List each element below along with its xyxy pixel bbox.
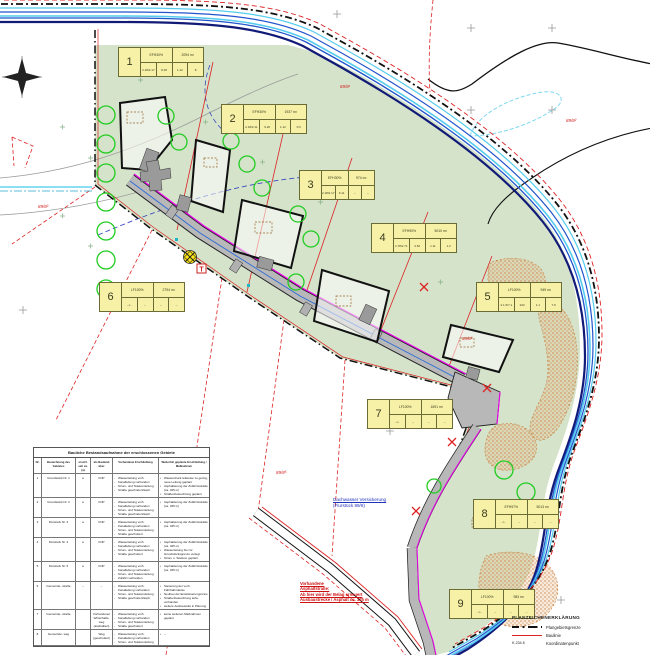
lot-value: –/–	[472, 605, 488, 618]
lot-area: 5013 m²	[528, 500, 559, 514]
row-planned: •Sanierung der vorh. Fahrbahndecke•Neuba…	[159, 582, 209, 609]
lot-value: –	[349, 186, 362, 199]
parcel-number: 89/8⁶	[462, 336, 473, 341]
lot-value: 2.1.5/7.1	[499, 298, 515, 311]
row-existing: -Wasserleitung vorh.-Kanalleitung vorhan…	[113, 630, 159, 645]
hydrant-symbol	[184, 251, 197, 264]
row-existing: -Wasserleitung vorh.-Kanalleitung vorhan…	[113, 518, 159, 537]
lot-value: 1.2	[441, 239, 456, 252]
parcel-number: 89/8⁵	[276, 470, 287, 475]
lot-label-2: 2EFH30%1937 m²2.18/2.119.201.12P.3	[221, 104, 307, 134]
row-status: FNP	[91, 518, 113, 537]
row-existing: -Wasserleitung vorh.-Kanalleitung vorhan…	[113, 474, 159, 497]
parcel-number: 89/8¹	[340, 84, 351, 89]
map-legend: PLANZEICHENERKLÄRUNG PlangebietsgrenzeBa…	[512, 615, 647, 647]
row-existing: -Wasserleitung vorh.-Kanalleitung vorhan…	[113, 538, 159, 561]
lot-label-6: 6LF100%2794 m²–/––––	[99, 282, 185, 312]
lot-number: 1	[119, 48, 141, 76]
row-status: FNP	[91, 498, 113, 517]
table-row: 8Gemeinde- wegWeg (geschottert)-Wasserle…	[34, 630, 209, 646]
row-existing: -Wasserleitung vorh.-Kanalleitung vorhan…	[113, 582, 159, 609]
lot-value: –	[512, 515, 528, 528]
lot-value: 2.78/2.71	[394, 239, 410, 252]
lot-usage: LF100%	[390, 400, 422, 414]
lot-value: 2.18/2.11	[244, 120, 260, 133]
row-age: a	[76, 498, 91, 517]
row-status: FNP	[91, 474, 113, 497]
lot-value: –/–	[390, 415, 406, 428]
table-row: 4Flurstück Nr. 4aFNP-Wasserleitung vorh.…	[34, 538, 209, 562]
row-planned: •Asphaltierung der Zufahrtsstraße (ca. 3…	[159, 538, 209, 561]
row-planned: •Asphaltierung der Zufahrtsstraße (ca. 3…	[159, 518, 209, 537]
row-planned: •keine weiteren Maßnahmen geplant	[159, 610, 209, 629]
row-name: Gemeinde- straße	[42, 582, 76, 609]
lot-usage: EFH90%	[394, 224, 426, 238]
row-no: 7	[34, 610, 42, 629]
lot-value: –	[528, 515, 544, 528]
row-age: –	[76, 582, 91, 609]
lot-area: 983 m²	[504, 590, 535, 604]
table-row: 2Grundstück Nr. 2aFNP-Wasserleitung vorh…	[34, 498, 209, 518]
lot-usage: EFH30%	[322, 171, 349, 185]
parcel-number: 89/8³	[38, 204, 49, 209]
lot-usage: LF100%	[472, 590, 504, 604]
inventory-table: Bauliche Bestandsaufnahme der erschlosse…	[33, 447, 210, 647]
lot-number: 8	[474, 500, 496, 528]
row-no: 3	[34, 518, 42, 537]
lot-area: 1937 m²	[276, 105, 307, 119]
lot-value: 1.12	[276, 120, 292, 133]
lot-value: 7.9	[546, 298, 561, 311]
row-no: 1	[34, 474, 42, 497]
lot-value: 4.52	[410, 239, 426, 252]
header-cell: Nr.	[34, 458, 42, 473]
row-existing: -Wasserleitung vorh.-Kanalleitung vorhan…	[113, 562, 159, 581]
lot-value: –	[362, 186, 374, 199]
lot-area: 2794 m²	[154, 283, 185, 297]
water-line-left	[0, 187, 92, 191]
row-no: 6	[34, 582, 42, 609]
infiltration-line1: Dachwasser Versickerung	[333, 497, 386, 503]
infiltration-annotation: Dachwasser Versickerung (Flurstück 89/8)	[333, 497, 386, 508]
row-age	[76, 610, 91, 629]
lot-value: 2.18/2.17	[322, 186, 336, 199]
lot-value: 9.20	[260, 120, 276, 133]
parcel-number: 89/8²	[566, 118, 577, 123]
lot-value: 1.12	[173, 63, 189, 76]
row-name: Grundstück Nr. 2	[42, 498, 76, 517]
text-sample: K-234 8	[512, 641, 525, 645]
lot-label-1: 1EFH30%2094 m²2.18/2.178.201.128	[118, 47, 204, 77]
row-status: FNP	[91, 562, 113, 581]
lot-number: 6	[100, 283, 122, 311]
lot-value: 232	[515, 298, 531, 311]
lot-value: –	[138, 298, 154, 311]
lot-number: 5	[477, 283, 499, 311]
house-2	[191, 140, 230, 212]
table-row: 7Gemeinde- straßeVorhandener Wirtschafts…	[34, 610, 209, 630]
compass-rose	[2, 56, 42, 98]
table-row: 3Flurstück Nr. 3aFNP-Wasserleitung vorh.…	[34, 518, 209, 538]
lot-number: 3	[300, 171, 322, 199]
lot-value: –	[488, 605, 504, 618]
row-name: Flurstück Nr. 5	[42, 562, 76, 581]
lot-area: 2094 m²	[173, 48, 204, 62]
table-row: 1Grundstück Nr. 1aFNP-Wasserleitung vorh…	[34, 474, 209, 498]
row-name: Gemeinde- weg	[42, 630, 76, 645]
row-no: 4	[34, 538, 42, 561]
row-no: 5	[34, 562, 42, 581]
cyan-dashed-area	[470, 92, 561, 136]
legend-item: Plangebietsgrenze	[512, 623, 647, 631]
lot-value: –	[154, 298, 170, 311]
lot-label-7: 7LF100%1691 m²–/––––	[367, 399, 453, 429]
lot-value: –	[406, 415, 422, 428]
row-planned: •Wasserdruck teilweise zu gering, neue L…	[159, 474, 209, 497]
row-status: –	[91, 582, 113, 609]
row-status: Weg (geschottert)	[91, 630, 113, 645]
lot-usage: EFH30%	[244, 105, 276, 119]
lot-label-4: 4EFH90%5010 m²2.78/2.714.521.111.2	[371, 223, 457, 253]
table-row: 5Flurstück Nr. 5aFNP-Wasserleitung vorh.…	[34, 562, 209, 582]
header-cell: als Bauland über	[91, 458, 113, 473]
lot-value: 1.11	[426, 239, 442, 252]
lot-value: –/–	[122, 298, 138, 311]
lot-usage: EFH97%	[496, 500, 528, 514]
row-age: a	[76, 474, 91, 497]
header-cell: erschl. seit ca. (a)	[76, 458, 91, 473]
row-name: Flurstück Nr. 4	[42, 538, 76, 561]
row-name: Gemeinde- straße	[42, 610, 76, 629]
lot-label-5: 5LF100%949 m²2.1.5/7.12321.17.9	[476, 282, 562, 312]
inventory-table-header: Nr.Bezeichnung des Gebieteserschl. seit …	[34, 458, 209, 474]
lot-value: –/–	[496, 515, 512, 528]
infiltration-line2: (Flurstück 89/8)	[333, 503, 386, 509]
row-existing: -Wasserleitung vorh.-Kanalleitung vorhan…	[113, 610, 159, 629]
lot-value: 2.18/2.17	[141, 63, 157, 76]
boundary-line-sample	[512, 626, 542, 628]
legend-item: K-234 8Koordinatenpunkt	[512, 639, 647, 647]
transformer-symbol: T	[197, 264, 206, 274]
header-cell: Weiterhin geplante Erschließung / Maßnah…	[159, 458, 209, 473]
road-note-annotation: Vorhandene Asphaltstraße: Ab hier wird d…	[300, 581, 395, 602]
site-plan-page: T 89/8¹89/8²89/8³89/8⁴89/8⁵89/8⁶ 1EFH30%…	[0, 0, 650, 655]
lot-number: 7	[368, 400, 390, 428]
table-row: 6Gemeinde- straße––-Wasserleitung vorh.-…	[34, 582, 209, 610]
lot-number: 9	[450, 590, 472, 618]
row-age	[76, 630, 91, 645]
row-planned: •Asphaltierung der Zufahrtsstraße (ca. 3…	[159, 498, 209, 517]
lot-usage: LF100%	[499, 283, 531, 297]
lot-label-3: 3EFH30%974 m²2.18/2.179.11––	[299, 170, 375, 200]
lot-area: 974 m²	[349, 171, 375, 185]
legend-item-label: Koordinatenpunkt	[546, 641, 579, 646]
lot-usage: EFH30%	[141, 48, 173, 62]
header-cell: Bezeichnung des Gebietes	[42, 458, 76, 473]
legend-item: Baulinie	[512, 631, 647, 639]
row-age: a	[76, 518, 91, 537]
road-note-line4: Ausbaustrecke / Asphalt ca. 325 m	[300, 597, 395, 602]
transformer-label: T	[199, 267, 204, 274]
lot-value: –	[169, 298, 184, 311]
inventory-table-title: Bauliche Bestandsaufnahme der erschlosse…	[34, 448, 209, 458]
lot-value: –	[437, 415, 452, 428]
row-status: FNP	[91, 538, 113, 561]
header-cell: Vorhandene Erschließung	[113, 458, 159, 473]
lot-area: 1691 m²	[422, 400, 453, 414]
red-line-sample	[512, 635, 542, 636]
lot-value: P.3	[291, 120, 306, 133]
lot-area: 949 m²	[531, 283, 562, 297]
lot-value: –	[422, 415, 438, 428]
row-no: 8	[34, 630, 42, 645]
legend-item-label: Baulinie	[546, 633, 561, 638]
lot-usage: LF100%	[122, 283, 154, 297]
lot-label-8: 8EFH97%5013 m²–/––––	[473, 499, 559, 529]
lot-value: 8	[188, 63, 203, 76]
row-name: Grundstück Nr. 1	[42, 474, 76, 497]
legend-title: PLANZEICHENERKLÄRUNG	[512, 615, 647, 620]
row-planned: •–	[159, 630, 209, 645]
lot-value: –	[543, 515, 558, 528]
lot-number: 2	[222, 105, 244, 133]
row-planned: •Asphaltierung der Zufahrtsstraße (ca. 3…	[159, 562, 209, 581]
row-name: Flurstück Nr. 3	[42, 518, 76, 537]
lot-value: 9.11	[336, 186, 349, 199]
lot-value: 1.1	[531, 298, 547, 311]
legend-item-label: Plangebietsgrenze	[546, 625, 581, 630]
row-age: a	[76, 562, 91, 581]
row-status: Vorhandener Wirtschafts- weg (asphaltier…	[91, 610, 113, 629]
lot-area: 5010 m²	[426, 224, 457, 238]
lot-value: 8.20	[157, 63, 173, 76]
row-existing: -Wasserleitung vorh.-Kanalleitung vorhan…	[113, 498, 159, 517]
row-age: a	[76, 538, 91, 561]
lot-number: 4	[372, 224, 394, 252]
row-no: 2	[34, 498, 42, 517]
